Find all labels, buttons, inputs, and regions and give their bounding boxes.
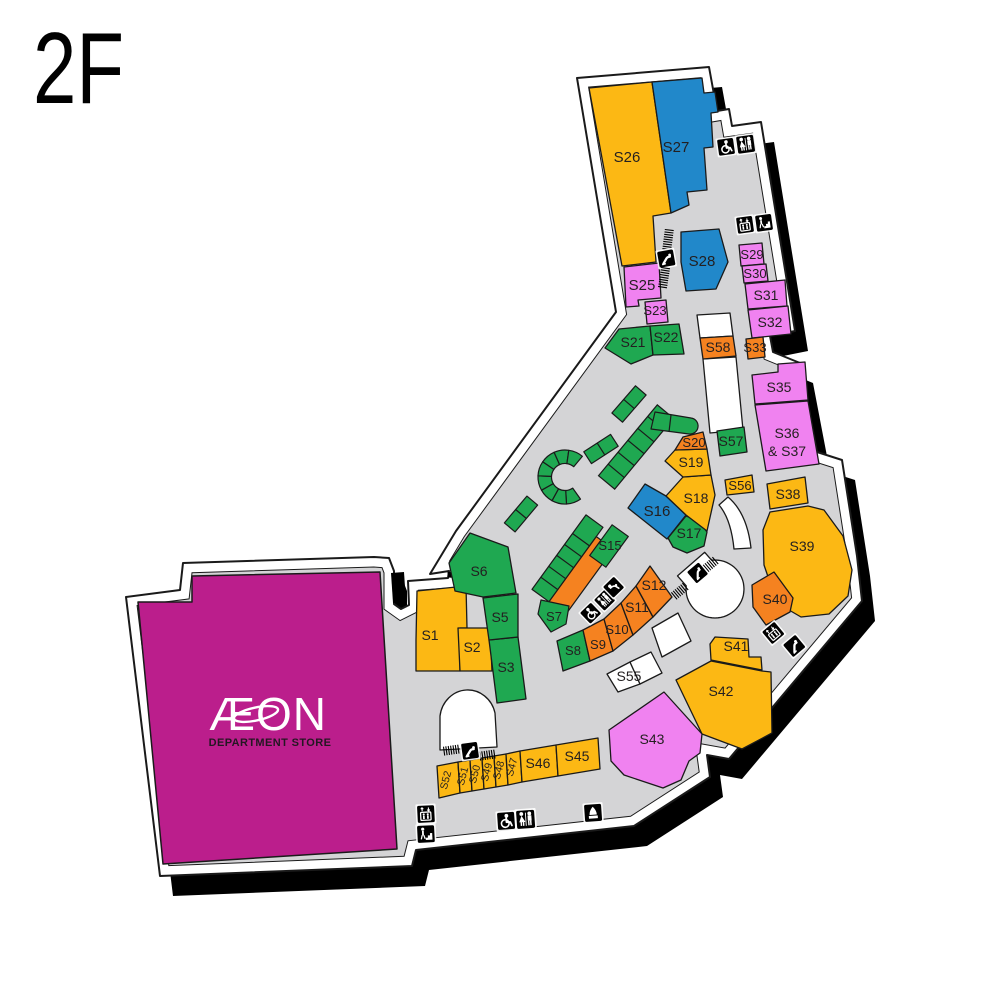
svg-text:S43: S43 bbox=[640, 731, 665, 747]
svg-text:S38: S38 bbox=[776, 486, 801, 502]
svg-text:S29: S29 bbox=[740, 247, 763, 262]
svg-text:S31: S31 bbox=[754, 287, 779, 303]
svg-text:S7: S7 bbox=[546, 609, 562, 624]
svg-text:S56: S56 bbox=[728, 478, 751, 493]
svg-text:S33: S33 bbox=[743, 340, 766, 355]
svg-text:S36: S36 bbox=[775, 425, 800, 441]
svg-text:S35: S35 bbox=[767, 379, 792, 395]
svg-text:S20: S20 bbox=[682, 435, 705, 450]
svg-text:S39: S39 bbox=[790, 538, 815, 554]
svg-text:S11: S11 bbox=[625, 599, 649, 615]
svg-text:S9: S9 bbox=[590, 637, 606, 652]
svg-text:S3: S3 bbox=[497, 659, 514, 675]
svg-text:S30: S30 bbox=[743, 266, 766, 281]
svg-text:DEPARTMENT STORE: DEPARTMENT STORE bbox=[209, 737, 332, 749]
svg-text:S46: S46 bbox=[526, 755, 551, 771]
svg-text:S1: S1 bbox=[421, 627, 438, 643]
svg-text:S27: S27 bbox=[663, 139, 690, 156]
svg-text:ÆON: ÆON bbox=[209, 688, 327, 740]
svg-text:S21: S21 bbox=[621, 334, 646, 350]
svg-text:S41: S41 bbox=[724, 638, 749, 654]
svg-text:S18: S18 bbox=[684, 490, 709, 506]
svg-text:S2: S2 bbox=[463, 639, 480, 655]
svg-text:S25: S25 bbox=[629, 277, 656, 294]
svg-text:S57: S57 bbox=[719, 433, 744, 449]
svg-text:S12: S12 bbox=[642, 577, 667, 593]
svg-text:S16: S16 bbox=[644, 503, 671, 520]
svg-text:S42: S42 bbox=[709, 683, 734, 699]
svg-text:S23: S23 bbox=[643, 303, 666, 318]
svg-text:S8: S8 bbox=[565, 643, 581, 658]
svg-text:S55: S55 bbox=[617, 668, 642, 684]
svg-text:S26: S26 bbox=[614, 149, 641, 166]
svg-text:& S37: & S37 bbox=[768, 443, 806, 459]
svg-text:S10: S10 bbox=[605, 622, 628, 637]
svg-text:S45: S45 bbox=[565, 748, 590, 764]
svg-text:S40: S40 bbox=[763, 591, 788, 607]
svg-text:S19: S19 bbox=[679, 454, 704, 470]
svg-text:S58: S58 bbox=[706, 339, 731, 355]
svg-text:S6: S6 bbox=[470, 563, 487, 579]
svg-text:S5: S5 bbox=[491, 609, 508, 625]
svg-text:S32: S32 bbox=[758, 314, 783, 330]
svg-text:S28: S28 bbox=[689, 253, 716, 270]
svg-text:S22: S22 bbox=[654, 329, 679, 345]
svg-text:S17: S17 bbox=[677, 525, 702, 541]
svg-text:S15: S15 bbox=[598, 538, 621, 553]
svg-text:2F: 2F bbox=[33, 13, 124, 125]
